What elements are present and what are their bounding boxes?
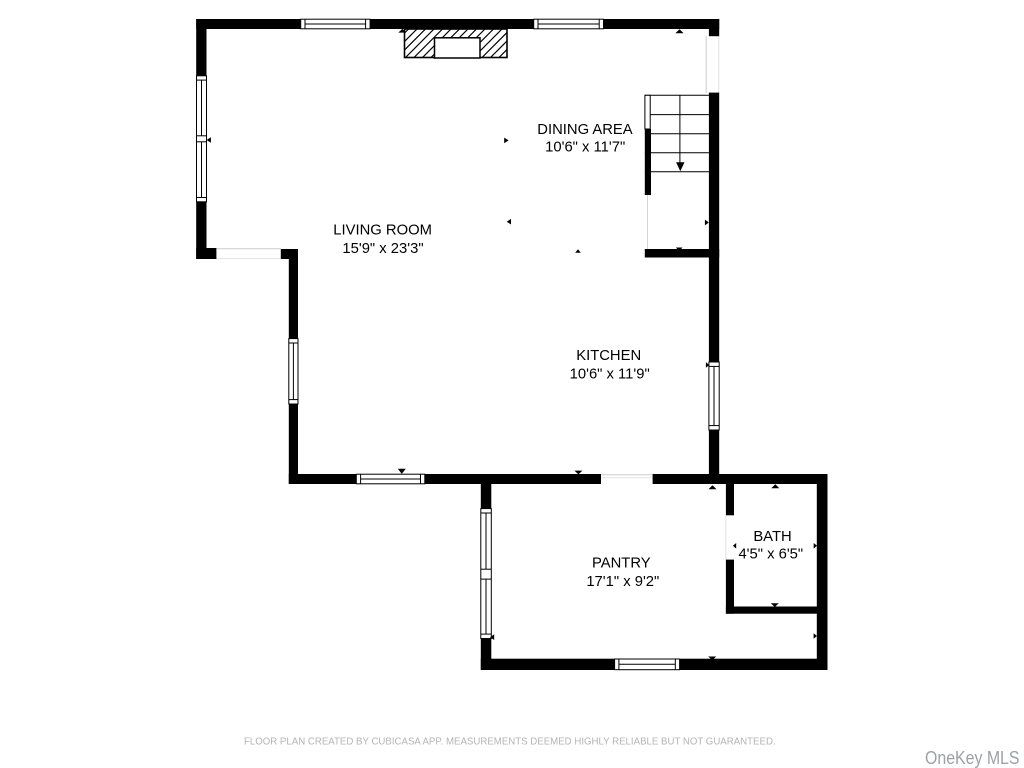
svg-text:17'1" x 9'2": 17'1" x 9'2" bbox=[586, 574, 659, 590]
svg-text:OneKey MLS: OneKey MLS bbox=[925, 747, 1020, 768]
svg-text:KITCHEN: KITCHEN bbox=[576, 348, 641, 364]
svg-text:15'9" x 23'3": 15'9" x 23'3" bbox=[342, 241, 423, 257]
svg-text:LIVING ROOM: LIVING ROOM bbox=[333, 222, 432, 238]
svg-text:PANTRY: PANTRY bbox=[592, 555, 651, 571]
svg-text:FLOOR PLAN CREATED BY CUBICASA: FLOOR PLAN CREATED BY CUBICASA APP. MEAS… bbox=[244, 737, 776, 748]
svg-text:10'6" x 11'9": 10'6" x 11'9" bbox=[570, 367, 650, 383]
svg-text:DINING AREA: DINING AREA bbox=[537, 122, 633, 138]
svg-text:BATH: BATH bbox=[753, 529, 791, 545]
svg-text:4'5" x 6'5": 4'5" x 6'5" bbox=[738, 547, 803, 563]
svg-text:10'6" x 11'7": 10'6" x 11'7" bbox=[545, 139, 625, 155]
